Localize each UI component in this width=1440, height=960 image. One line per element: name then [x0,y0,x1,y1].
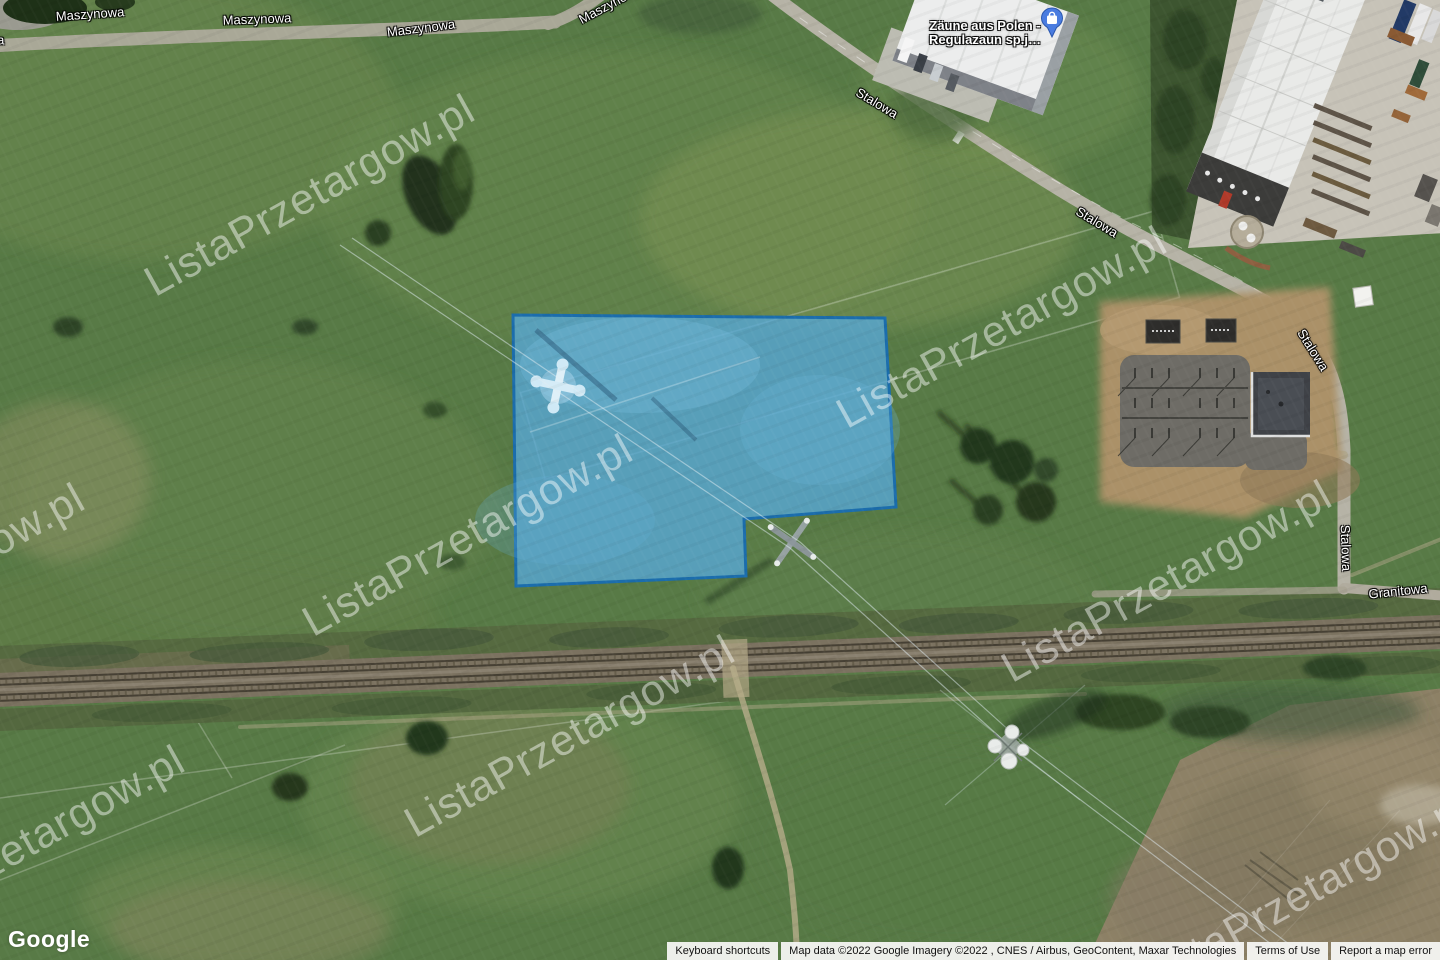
map-data-attribution: Map data ©2022 Google Imagery ©2022 , CN… [781,942,1244,960]
terms-of-use-link[interactable]: Terms of Use [1247,942,1328,960]
keyboard-shortcuts-button[interactable]: Keyboard shortcuts [667,942,778,960]
google-logo[interactable]: Google [8,926,90,953]
report-map-error-link[interactable]: Report a map error [1331,942,1440,960]
poi-marker-pin[interactable] [1040,7,1064,39]
poi-label-business[interactable]: Zäune aus Polen - Regulazaun sp.j… [929,19,1041,47]
road-label-maszynowa-5: Maszynowa [0,33,4,48]
poi-label-line1: Zäune aus Polen - [929,19,1041,33]
road-label-maszynowa-2: Maszynowa [222,10,291,27]
attribution-bar: Keyboard shortcuts Map data ©2022 Google… [667,942,1440,960]
poi-label-line2: Regulazaun sp.j… [929,33,1041,47]
substation [1100,286,1373,518]
satellite-map-canvas[interactable]: ListaPrzetargow.pl ListaPrzetargow.pl Li… [0,0,1440,960]
substation-building [1252,372,1310,436]
map-imagery [0,0,1440,960]
road-label-stalowa-4: Stalowa [1338,525,1355,572]
